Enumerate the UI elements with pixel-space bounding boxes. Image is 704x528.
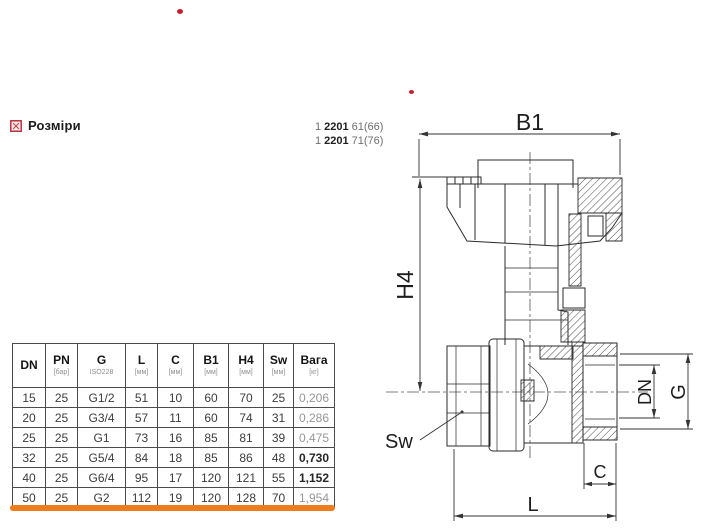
table-header-cell: H4[мм]: [229, 344, 264, 388]
red-dot-mid: [409, 90, 414, 94]
red-dot-top: [177, 9, 183, 14]
table-cell: 74: [229, 408, 264, 428]
dimension-c: C: [584, 443, 616, 489]
table-cell: G3/4: [78, 408, 126, 428]
table-cell: 39: [264, 428, 294, 448]
table-cell: 1,152: [294, 468, 335, 488]
table-row: 3225G5/484188586480,730: [13, 448, 335, 468]
selected-row-highlight-bar: [10, 505, 335, 511]
table-cell: 25: [46, 428, 78, 448]
table-row: 4025G6/49517120121551,152: [13, 468, 335, 488]
table-cell: 15: [13, 388, 46, 408]
table-cell: 25: [264, 388, 294, 408]
product-codes: 1220161(66) 1220171(76): [315, 120, 386, 148]
table-cell: 25: [46, 468, 78, 488]
table-cell: 25: [46, 408, 78, 428]
code-prefix: 1: [315, 121, 321, 133]
datasheet-page: Розміри 1220161(66) 1220171(76): [0, 0, 704, 528]
table-cell: 85: [194, 448, 229, 468]
table-cell: 70: [229, 388, 264, 408]
table-cell: 0,730: [294, 448, 335, 468]
product-code-line: 1220161(66): [315, 120, 386, 134]
table-cell: 18: [158, 448, 194, 468]
table-cell: 60: [194, 408, 229, 428]
table-header-cell: C[мм]: [158, 344, 194, 388]
dimensions-table: DNPN[бар]GISO228L[мм]C[мм]B1[мм]H4[мм]Sw…: [12, 343, 335, 508]
table-row: 2525G173168581390,475: [13, 428, 335, 448]
table-cell: 31: [264, 408, 294, 428]
table-cell: 20: [13, 408, 46, 428]
table-header-cell: Вага[кг]: [294, 344, 335, 388]
table-cell: G1: [78, 428, 126, 448]
table-header-cell: B1[мм]: [194, 344, 229, 388]
table-cell: 17: [158, 468, 194, 488]
valve-technical-drawing: B1 H4 Sw DN G: [378, 105, 704, 526]
table-cell: 0,475: [294, 428, 335, 448]
dimension-dn: DN: [619, 365, 660, 418]
valve-body-outline: [447, 160, 622, 451]
table-cell: 32: [13, 448, 46, 468]
table-cell: 25: [46, 388, 78, 408]
code-prefix: 1: [315, 135, 321, 147]
table-cell: 48: [264, 448, 294, 468]
callout-sw: Sw: [385, 411, 464, 454]
code-model: 2201: [324, 135, 348, 147]
table-cell: 120: [194, 468, 229, 488]
section-title: Розміри: [28, 118, 81, 133]
table-cell: 40: [13, 468, 46, 488]
table-cell: 85: [194, 428, 229, 448]
table-cell: 10: [158, 388, 194, 408]
label-dn: DN: [635, 379, 655, 405]
label-c: C: [594, 462, 607, 482]
table-header-cell: L[мм]: [126, 344, 158, 388]
label-b1: B1: [516, 109, 544, 135]
dimension-b1: B1: [419, 109, 620, 176]
table-header-cell: DN: [13, 344, 46, 388]
label-l: L: [527, 494, 538, 516]
table-cell: 73: [126, 428, 158, 448]
table-header-cell: GISO228: [78, 344, 126, 388]
table-cell: 60: [194, 388, 229, 408]
table-cell: 95: [126, 468, 158, 488]
label-h4: H4: [392, 270, 418, 300]
table-header-cell: PN[бар]: [46, 344, 78, 388]
table-cell: 25: [46, 448, 78, 468]
dimensions-checkbox-icon: [10, 120, 22, 132]
code-model: 2201: [324, 121, 348, 133]
table-cell: 16: [158, 428, 194, 448]
table-row: 2025G3/457116074310,286: [13, 408, 335, 428]
table-cell: G1/2: [78, 388, 126, 408]
table-cell: 11: [158, 408, 194, 428]
product-code-line: 1220171(76): [315, 134, 386, 148]
table-cell: 81: [229, 428, 264, 448]
table-cell: 84: [126, 448, 158, 468]
table-cell: 86: [229, 448, 264, 468]
table-cell: 121: [229, 468, 264, 488]
section-header: Розміри: [10, 118, 81, 133]
table-cell: 57: [126, 408, 158, 428]
dimension-h4: H4: [392, 177, 447, 391]
table-header-cell: Sw[мм]: [264, 344, 294, 388]
table-cell: 25: [13, 428, 46, 448]
table-cell: 55: [264, 468, 294, 488]
table-cell: 0,286: [294, 408, 335, 428]
table-cell: 51: [126, 388, 158, 408]
dimensions-table-body: 1525G1/251106070250,2062025G3/4571160743…: [13, 388, 335, 508]
table-row: 1525G1/251106070250,206: [13, 388, 335, 408]
table-cell: 0,206: [294, 388, 335, 408]
table-cell: G6/4: [78, 468, 126, 488]
label-g: G: [668, 384, 690, 400]
label-sw: Sw: [385, 431, 413, 453]
dimensions-table-head: DNPN[бар]GISO228L[мм]C[мм]B1[мм]H4[мм]Sw…: [13, 344, 335, 388]
table-cell: G5/4: [78, 448, 126, 468]
